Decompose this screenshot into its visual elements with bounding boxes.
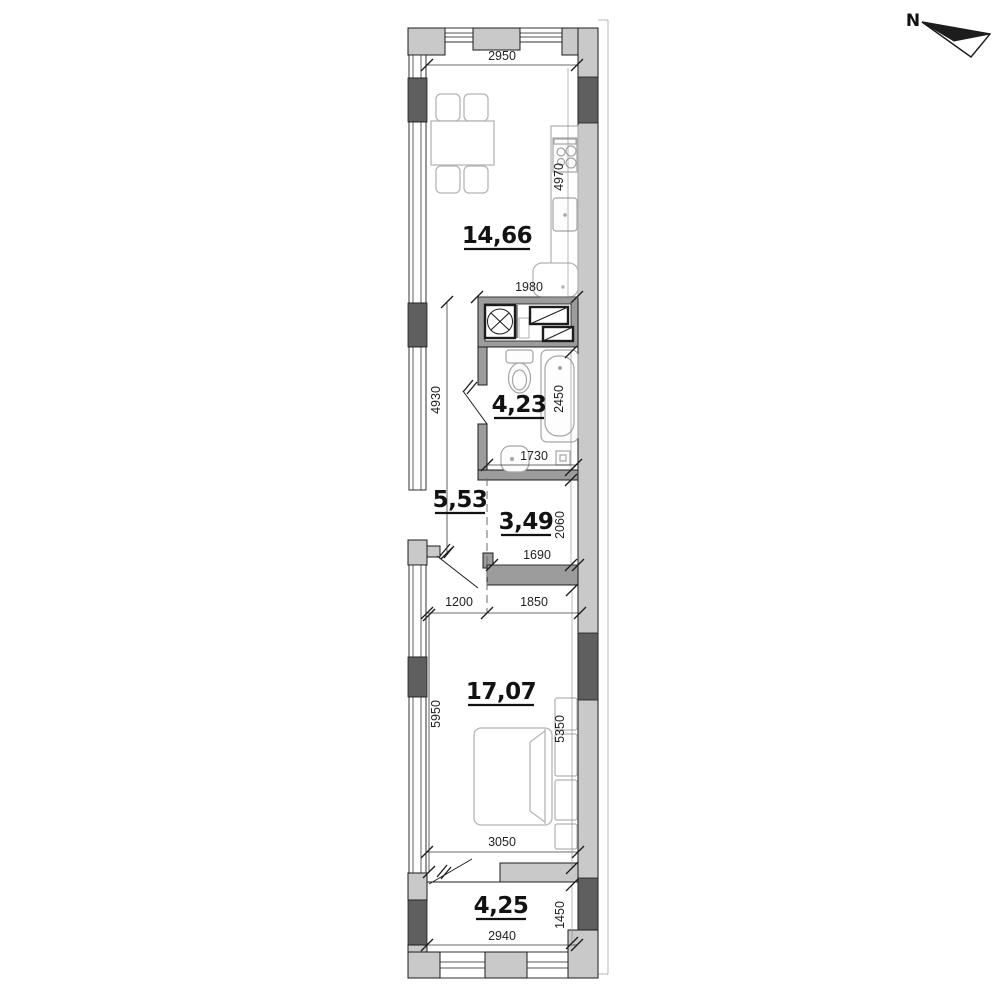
dim-balcony-depth: 1450 [553, 901, 567, 929]
floor-plan-page: 2950 4970 1980 4930 2450 1730 2060 1690 … [0, 0, 1000, 1000]
dining-set [431, 94, 494, 193]
dim-wardrobe-width: 1690 [523, 548, 551, 562]
dim-bedroom-width: 3050 [488, 835, 516, 849]
dim-bathroom-width: 1730 [520, 449, 548, 463]
dim-bedroom-depth-left: 5950 [429, 700, 443, 728]
north-compass: N [906, 11, 990, 57]
dim-kitchen-width-bottom: 1980 [515, 280, 543, 294]
dim-hallway-width: 1200 [445, 595, 473, 609]
balcony-area-label: 4,25 [474, 893, 529, 919]
utility-shaft [478, 297, 578, 347]
chair [464, 166, 488, 193]
bathroom-wall-lower [478, 424, 487, 470]
wardrobe-bedroom-wall [487, 565, 578, 585]
floor-plan-svg: 2950 4970 1980 4930 2450 1730 2060 1690 … [0, 0, 1000, 1000]
dim-bedroom-depth-right: 5350 [553, 715, 567, 743]
dim-kitchen-width-top: 2950 [488, 49, 516, 63]
nightstand [555, 824, 577, 849]
dim-hallway-depth: 4930 [429, 386, 443, 414]
dim-bathroom-depth: 2450 [552, 385, 566, 413]
dim-balcony-width: 2940 [488, 929, 516, 943]
right-wall [578, 28, 598, 978]
wardrobe-cabinet [555, 780, 577, 820]
north-label: N [906, 11, 920, 31]
bathroom-wall-bottom [478, 470, 578, 480]
left-wall [408, 55, 440, 978]
chair [436, 94, 460, 121]
hallway-area-label: 5,53 [433, 487, 488, 513]
bathroom-wall-upper [478, 347, 487, 385]
toilet-tank [506, 350, 533, 363]
north-arrow-icon [922, 22, 990, 57]
bathroom-door-leaf [463, 391, 487, 424]
balcony-window-wall [500, 863, 578, 882]
bathroom-area-label: 4,23 [492, 392, 547, 418]
kitchen-counter [533, 126, 578, 297]
kitchen-area-label: 14,66 [462, 223, 532, 249]
balcony-door-leaf [429, 859, 472, 884]
wardrobe-area-label: 3,49 [499, 509, 554, 535]
adjacent-unit-outline [598, 20, 608, 974]
dining-table [431, 121, 494, 165]
bedroom-area-label: 17,07 [466, 679, 536, 705]
chair [436, 166, 460, 193]
top-wall-left-pier [408, 28, 445, 55]
dim-wardrobe-depth: 2060 [553, 511, 567, 539]
bed [474, 728, 552, 825]
chair [464, 94, 488, 121]
top-wall-center-pier [473, 28, 520, 50]
entrance-door-leaf [437, 556, 478, 588]
dim-kitchen-depth: 4970 [552, 163, 566, 191]
dim-wardrobe-width-bottom: 1850 [520, 595, 548, 609]
